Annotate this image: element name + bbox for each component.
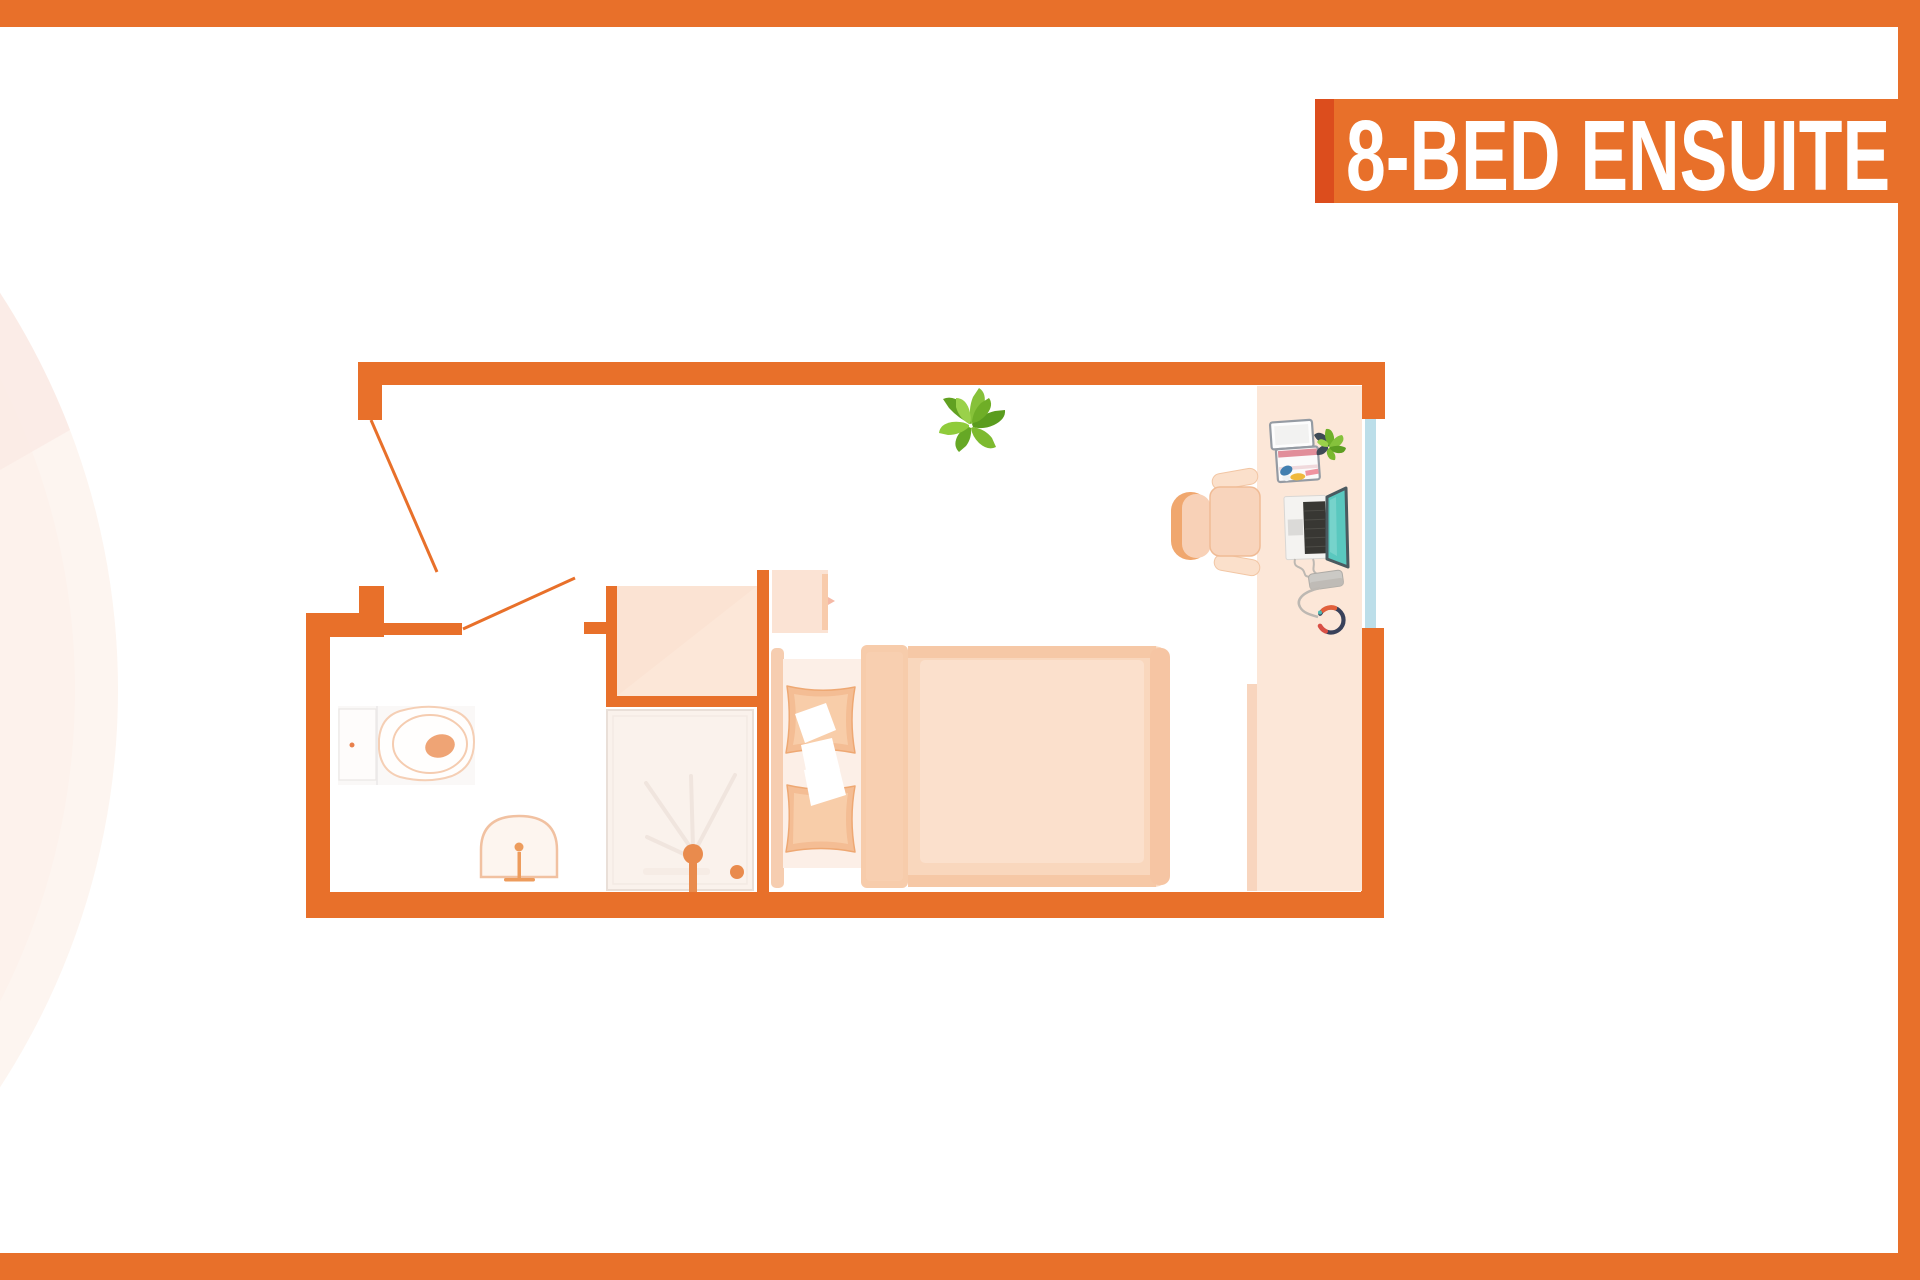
svg-text:8-BED ENSUITE: 8-BED ENSUITE <box>1346 100 1890 212</box>
